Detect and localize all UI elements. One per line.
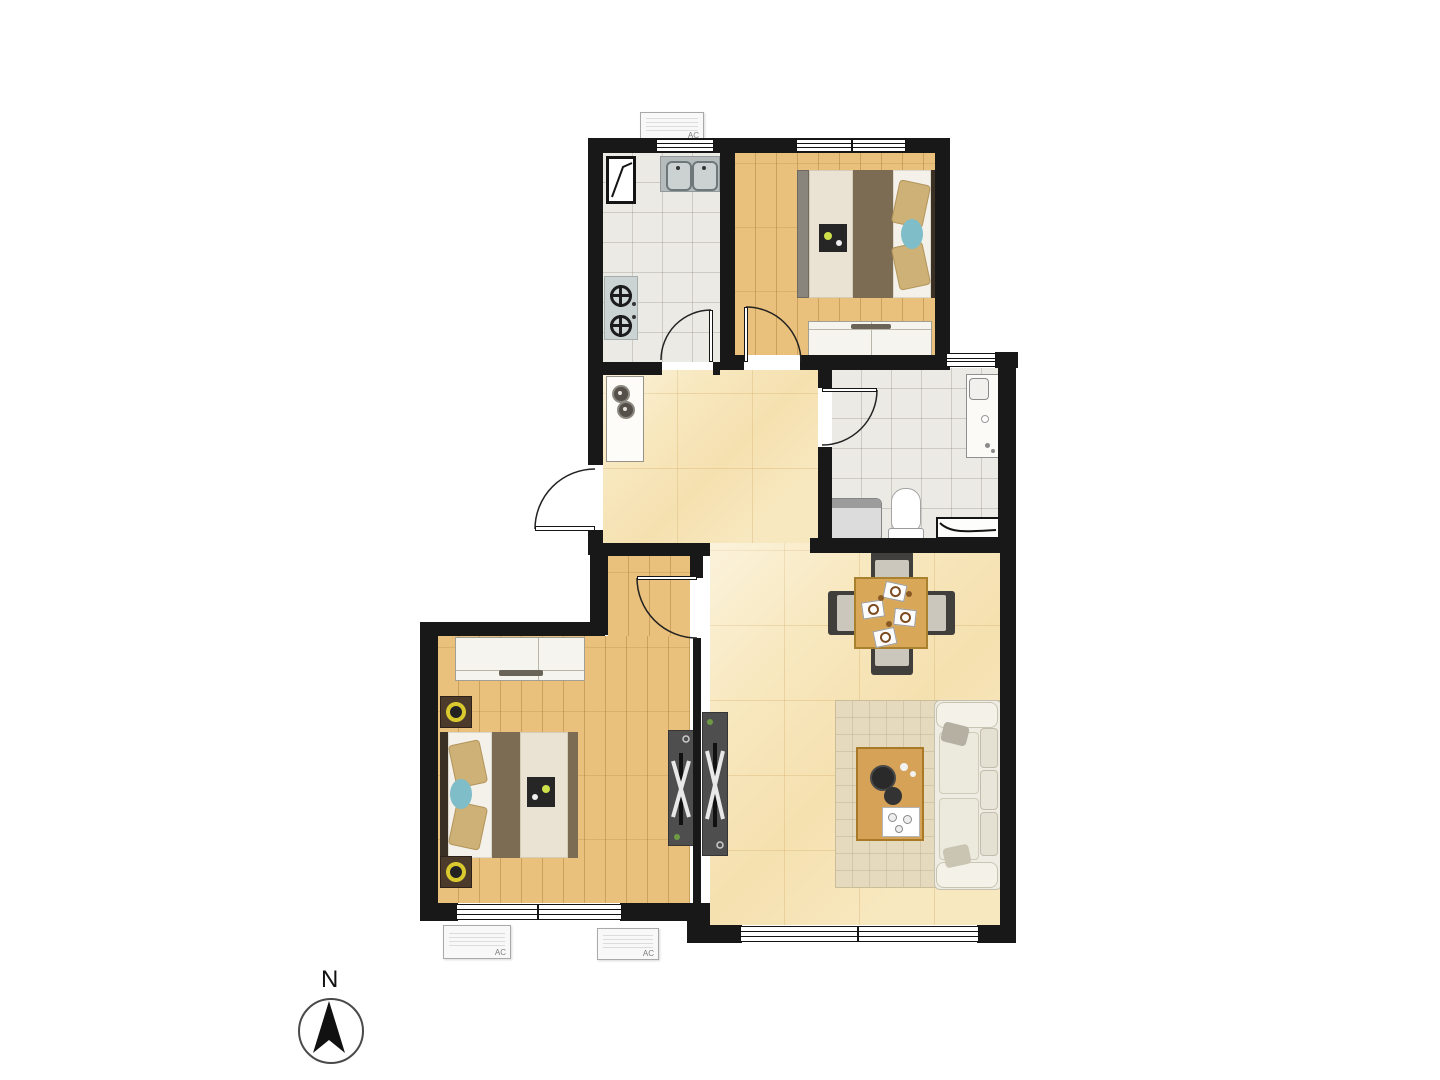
north-bedroom-door-leaf xyxy=(744,307,748,362)
kitchen-door-arc xyxy=(661,310,711,360)
bathroom-door-arc xyxy=(822,390,877,445)
kitchen-door-leaf xyxy=(709,310,713,362)
entry-door-leaf xyxy=(535,526,595,531)
master-bedroom-door-arc xyxy=(637,578,697,638)
door-swing-arcs xyxy=(0,0,1440,1080)
bathroom-door-leaf xyxy=(822,388,877,392)
entry-door-arc xyxy=(535,469,595,529)
master-bedroom-door-leaf xyxy=(637,576,697,580)
north-bedroom-door-arc xyxy=(746,307,801,362)
floor-plan-canvas: AC AC AC N xyxy=(0,0,1440,1080)
